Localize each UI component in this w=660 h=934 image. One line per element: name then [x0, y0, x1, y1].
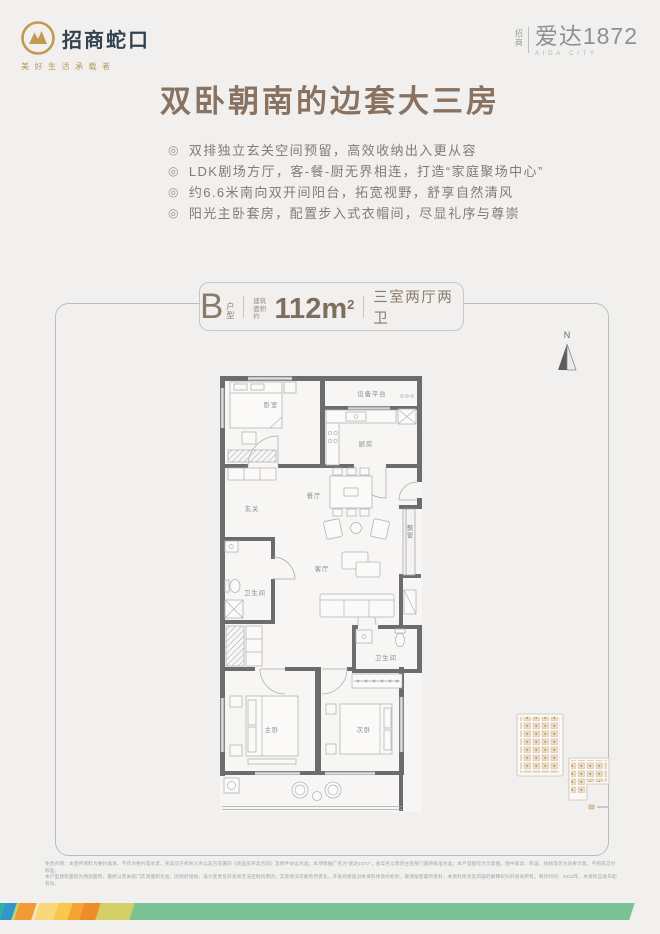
bottom-stripe — [0, 903, 660, 920]
project-name: 爱达1872 — [535, 24, 638, 48]
area-exponent: 2 — [347, 297, 354, 312]
room-label-bedroom: 卧室 — [264, 400, 279, 409]
north-arrow-icon: N — [552, 328, 582, 376]
feature-item: ◎ 双排独立玄关空间预留，高效收纳出入更从容 — [168, 139, 544, 160]
disclaimer-line-1: 免责声明：本宣传资料为要约邀请，不作为要约或承诺，买卖双方权利义务以双方签署的《… — [45, 861, 617, 874]
room-label-bay-window: 飘窗 — [406, 524, 413, 539]
unit-type-label-bottom: 型 — [226, 311, 234, 320]
feature-text: 双排独立玄关空间预留，高效收纳出入更从容 — [189, 140, 477, 159]
area-number: 112m — [275, 293, 348, 325]
feature-item: ◎ LDK剧场方厅，客-餐-厨无界相连，打造“家庭聚场中心” — [168, 160, 544, 181]
feature-text: 阳光主卧套房，配置步入式衣帽间，尽显礼序与尊崇 — [189, 203, 520, 222]
area-value: 112m2 — [275, 290, 355, 324]
project-logo-divider — [528, 27, 529, 53]
badge-divider — [363, 296, 364, 318]
unit-type-label-top: 户 — [226, 302, 234, 311]
key-plan-2 — [569, 758, 609, 800]
feature-item: ◎ 约6.6米南向双开间阳台，拓宽视野，舒享自然清风 — [168, 181, 544, 202]
project-prefix: 招 商 — [515, 29, 523, 47]
room-label-foyer: 玄关 — [245, 504, 260, 513]
room-label-bath-main: 卫生间 — [244, 588, 266, 597]
rooms-layout-label: 三室两厅两卫 — [373, 286, 463, 328]
unit-type-label: 户 型 — [226, 302, 234, 320]
brand-name: 招商蛇口 — [62, 24, 150, 53]
disclaimer-line-2: 本户型建筑面积为预测面积，最终以有关部门实测面积为准；因政府规划、设计变更及开发… — [45, 874, 617, 887]
project-prefix-top: 招 — [515, 29, 523, 38]
bottom-stripe-inner — [0, 903, 655, 920]
area-prefix-bottom: 面积约 — [253, 306, 271, 321]
bullet-icon: ◎ — [168, 185, 180, 199]
unit-type-letter: B — [200, 289, 223, 324]
project-subtitle: AIDA CITY — [535, 50, 638, 57]
room-label-kitchen: 厨房 — [359, 439, 374, 448]
room-label-dining: 餐厅 — [307, 491, 322, 500]
key-plan-1 — [517, 714, 563, 776]
north-label: N — [564, 330, 571, 340]
feature-text: 约6.6米南向双开间阳台，拓宽视野，舒享自然清风 — [189, 182, 514, 201]
brand-logo: 招商蛇口 美好生活承载者 — [20, 20, 150, 72]
room-label-second: 次卧 — [357, 725, 372, 734]
key-plan-legend — [589, 805, 609, 809]
feature-list: ◎ 双排独立玄关空间预留，高效收纳出入更从容 ◎ LDK剧场方厅，客-餐-厨无界… — [168, 139, 544, 223]
room-label-living: 客厅 — [315, 564, 330, 573]
mountain-ring-icon — [20, 20, 56, 56]
unit-type-badge: B 户 型 建筑 面积约 112m2 三室两厅两卫 — [199, 282, 464, 331]
feature-text: LDK剧场方厅，客-餐-厨无界相连，打造“家庭聚场中心” — [189, 161, 544, 180]
north-compass: N — [552, 328, 582, 381]
bullet-icon: ◎ — [168, 206, 180, 220]
project-name-block: 爱达1872 AIDA CITY — [535, 24, 638, 57]
bullet-icon: ◎ — [168, 143, 180, 157]
page-title: 双卧朝南的边套大三房 — [0, 76, 660, 121]
area-prefix-top: 建筑 — [253, 298, 271, 306]
disclaimer-text: 免责声明：本宣传资料为要约邀请，不作为要约或承诺，买卖双方权利义务以双方签署的《… — [45, 861, 617, 887]
room-label-bath-second: 卫生间 — [375, 653, 397, 662]
brand-tagline: 美好生活承载者 — [21, 61, 150, 72]
bullet-icon: ◎ — [168, 164, 180, 178]
poster-page: 招商蛇口 美好生活承载者 招 商 爱达1872 AIDA CITY 双卧朝南的边… — [0, 0, 660, 934]
badge-divider — [243, 296, 244, 318]
key-plan-diagrams — [505, 698, 617, 816]
feature-item: ◎ 阳光主卧套房，配置步入式衣帽间，尽显礼序与尊崇 — [168, 202, 544, 223]
brand-logo-row: 招商蛇口 — [20, 20, 150, 56]
stripe-segment — [129, 903, 635, 920]
floorplan-drawing: 卧室 设备平台 厨房 玄关 餐厅 客厅 卫生间 飘窗 卫生间 主卧 次卧 — [200, 362, 430, 822]
project-logo: 招 商 爱达1872 AIDA CITY — [515, 24, 638, 57]
area-prefix: 建筑 面积约 — [253, 298, 271, 321]
project-prefix-bottom: 商 — [515, 38, 523, 47]
room-label-master: 主卧 — [265, 725, 280, 734]
room-label-equipment: 设备平台 — [357, 389, 386, 398]
